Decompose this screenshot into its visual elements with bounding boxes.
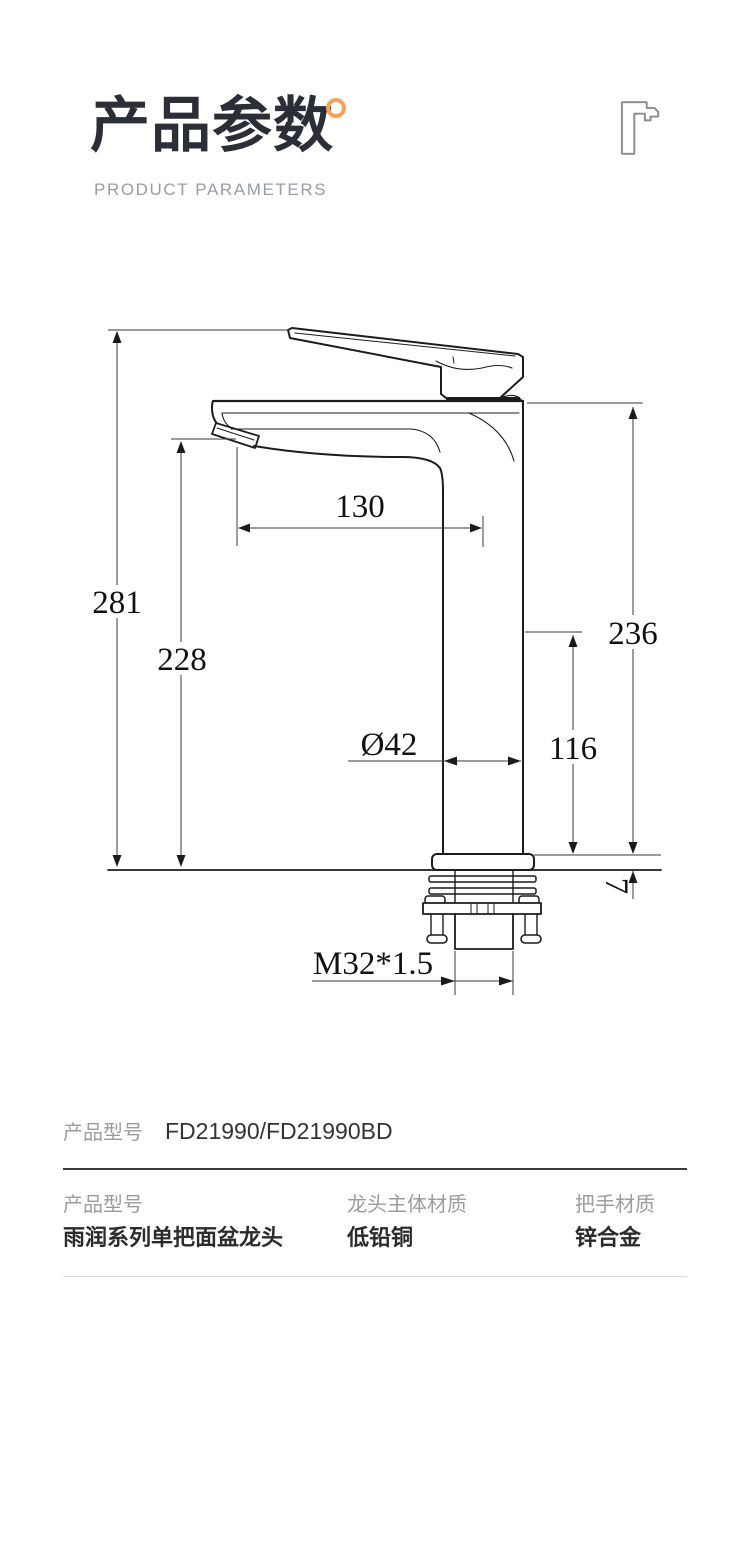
- dim-deck-thickness: 7: [598, 878, 634, 895]
- dim-column-height: 116: [549, 731, 597, 767]
- product-parameters-page: 产品参数 PRODUCT PARAMETERS: [0, 0, 750, 1549]
- dim-total-height: 281: [92, 585, 142, 621]
- spec-label: 产品型号: [63, 1193, 283, 1217]
- spec-label: 龙头主体材质: [347, 1193, 467, 1217]
- divider-light: [63, 1276, 687, 1277]
- dim-body-height: 236: [608, 616, 658, 652]
- page-subtitle: PRODUCT PARAMETERS: [94, 181, 327, 198]
- model-row-label: 产品型号: [63, 1121, 143, 1145]
- dim-spout-height: 228: [157, 642, 207, 678]
- spec-value: 雨润系列单把面盆龙头: [63, 1225, 283, 1251]
- spec-label: 把手材质: [575, 1193, 655, 1217]
- accent-ring-icon: [326, 98, 346, 118]
- faucet-outline: [108, 328, 661, 949]
- dim-thread-spec: M32*1.5: [313, 946, 433, 982]
- model-row-value: FD21990/FD21990BD: [165, 1118, 393, 1146]
- spec-col-handle-material: 把手材质 锌合金: [575, 1193, 655, 1251]
- dimension-labels: 281 228 130 236 116 Ø42 7 M32*1.5: [92, 489, 658, 982]
- spec-value: 低铅铜: [347, 1225, 467, 1251]
- divider-dark: [63, 1168, 687, 1170]
- technical-drawing: 281 228 130 236 116 Ø42 7 M32*1.5: [0, 300, 750, 1010]
- dim-diameter: Ø42: [361, 727, 418, 763]
- spec-col-body-material: 龙头主体材质 低铅铜: [347, 1193, 467, 1251]
- spec-col-model: 产品型号 雨润系列单把面盆龙头: [63, 1193, 283, 1251]
- spec-value: 锌合金: [575, 1225, 655, 1251]
- faucet-icon: [620, 100, 662, 156]
- page-title: 产品参数: [90, 96, 334, 156]
- dim-spout-reach: 130: [335, 489, 385, 525]
